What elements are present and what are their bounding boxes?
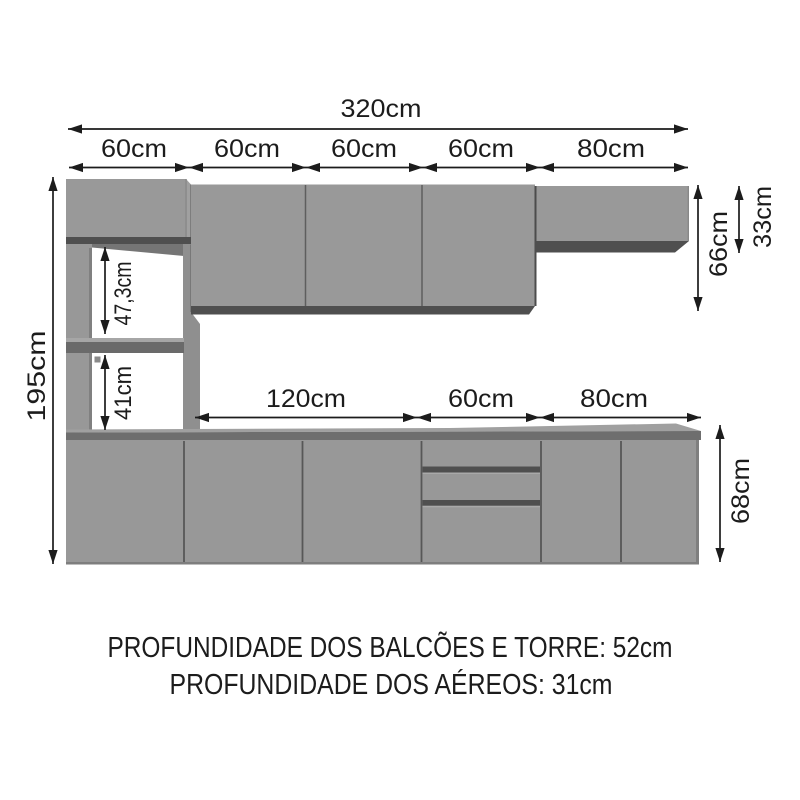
svg-text:80cm: 80cm [580,385,648,413]
svg-text:60cm: 60cm [448,135,514,163]
svg-text:33cm: 33cm [749,186,777,248]
svg-text:60cm: 60cm [101,135,167,163]
svg-text:195cm: 195cm [23,331,51,422]
svg-text:120cm: 120cm [266,385,346,413]
svg-text:47,3cm: 47,3cm [110,262,137,326]
svg-text:66cm: 66cm [705,211,733,277]
svg-text:60cm: 60cm [448,385,514,413]
svg-text:80cm: 80cm [577,135,645,163]
svg-text:41cm: 41cm [110,366,137,420]
svg-text:PROFUNDIDADE DOS AÉREOS: 31cm: PROFUNDIDADE DOS AÉREOS: 31cm [170,668,613,701]
svg-text:68cm: 68cm [727,458,755,524]
svg-text:320cm: 320cm [341,95,422,123]
svg-text:PROFUNDIDADE DOS BALCÕES E TOR: PROFUNDIDADE DOS BALCÕES E TORRE: 52cm [108,630,673,664]
svg-text:60cm: 60cm [214,135,280,163]
svg-text:60cm: 60cm [331,135,397,163]
